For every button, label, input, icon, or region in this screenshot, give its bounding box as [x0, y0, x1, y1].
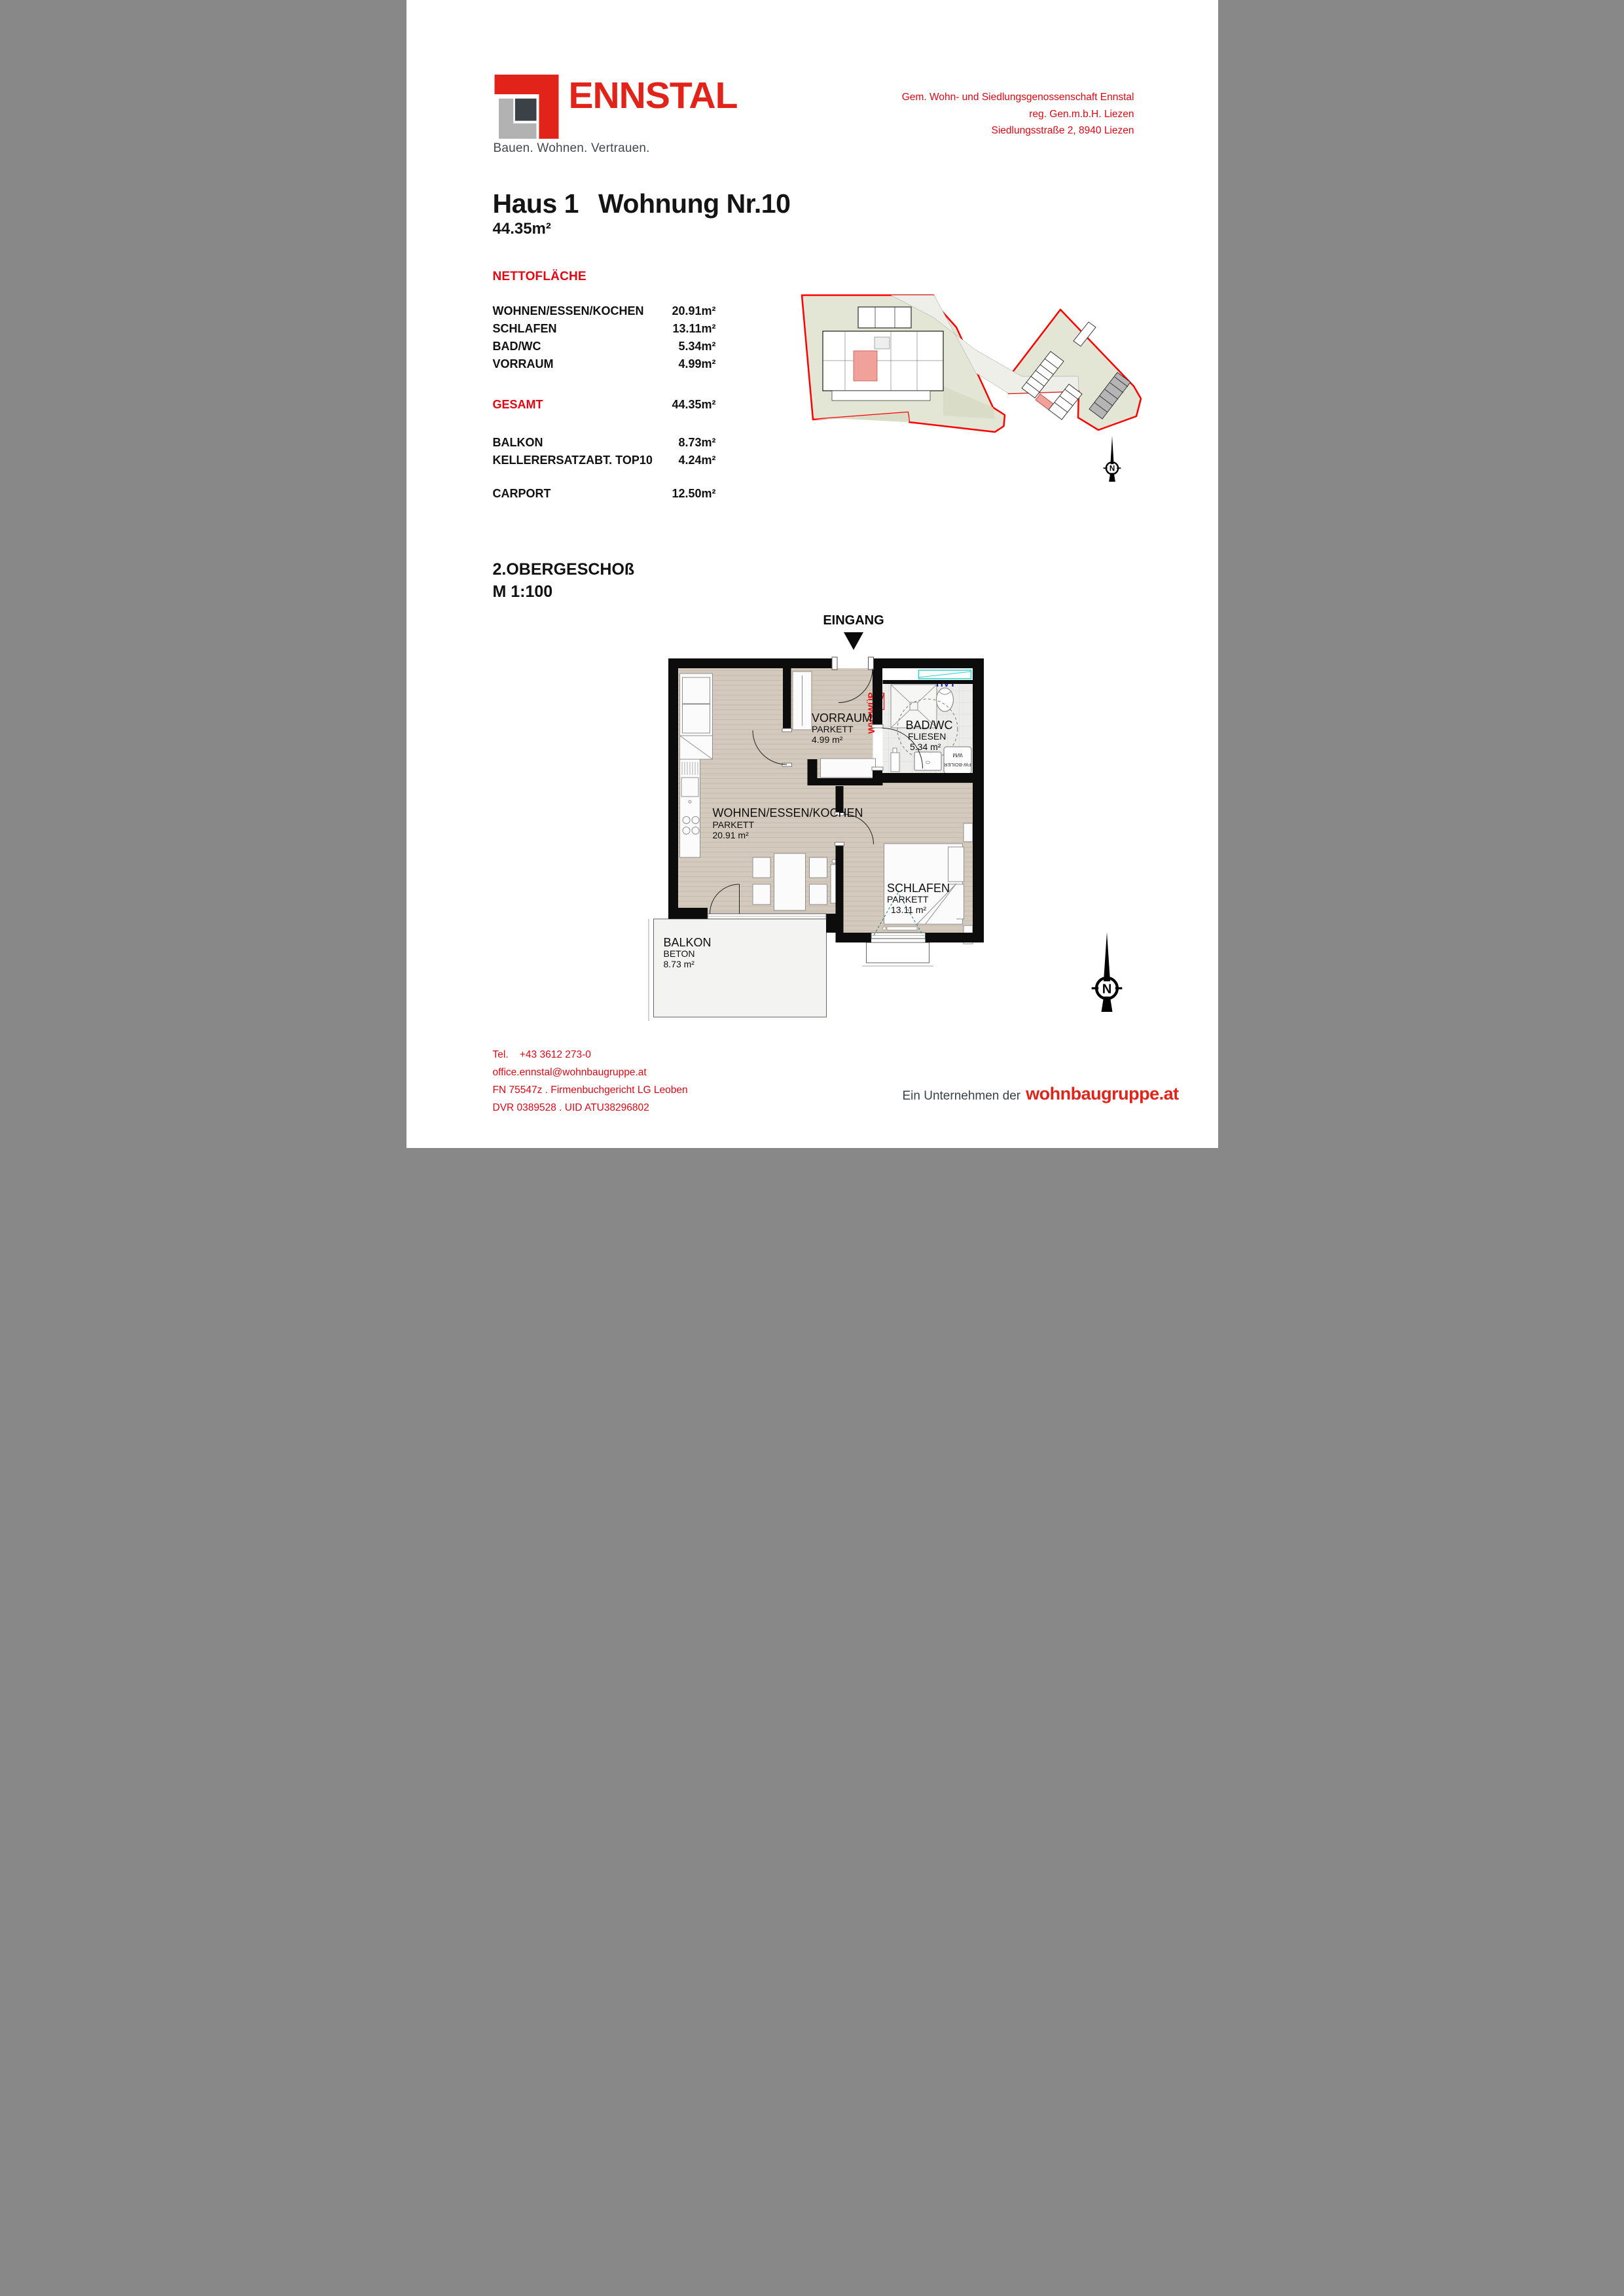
balkon-name: BALKON [663, 936, 711, 949]
netto-heading: NETTOFLÄCHE [493, 270, 586, 284]
north-letter: N [1102, 982, 1111, 996]
balkon-floor: BETON [663, 948, 695, 959]
table-row-gesamt: GESAMT44.35m² [493, 398, 716, 412]
window-sill [866, 942, 929, 963]
title-wohnung: Wohnung Nr.10 [598, 188, 790, 219]
floor-scale: M 1:100 [493, 583, 553, 601]
partner-prefix: Ein Unternehmen der [903, 1089, 1021, 1103]
carport-label: CARPORT [493, 487, 551, 501]
apartment-floorplan: EINGANG [629, 609, 989, 1021]
floor-level: 2.OBERGESCHOß [493, 560, 635, 579]
boiler-label: FW-BOILER [943, 762, 971, 768]
site-parcel-right [1005, 310, 1141, 430]
vorraum-floor: PARKETT [812, 724, 854, 734]
site-garage [858, 307, 911, 328]
wohnen-name: WOHNEN/ESSEN/KOCHEN [712, 806, 863, 819]
title-total-area: 44.35m² [493, 220, 551, 238]
footer-partner: Ein Unternehmen der wohnbaugruppe.at [903, 1084, 1179, 1104]
balcony-area [649, 919, 829, 1021]
wohnen-area: 20.91 m² [712, 830, 749, 840]
floorplan-document: ENNSTAL Bauen. Wohnen. Vertrauen. Gem. W… [406, 0, 1218, 1148]
table-row: WOHNEN/ESSEN/KOCHEN20.91m² [493, 304, 716, 318]
footer-vat: DVR 0389528 . UID ATU38296802 [493, 1099, 688, 1117]
schlafen-floor: PARKETT [887, 894, 929, 905]
table-row-carport: CARPORT12.50m² [493, 487, 716, 501]
bad-area: 5.34 m² [910, 742, 941, 752]
row-value: 4.99m² [678, 357, 715, 371]
wm-label: WM [952, 752, 962, 759]
row-label: VORRAUM [493, 357, 554, 371]
footer-email: office.ennstal@wohnbaugruppe.at [493, 1064, 688, 1081]
logo-dark-square [514, 99, 536, 121]
vorraum-name: VORRAUM [812, 711, 872, 725]
washing-machine [944, 747, 971, 774]
tel-number: +43 3612 273-0 [520, 1049, 591, 1060]
company-line1: Gem. Wohn- und Siedlungsgenossenschaft E… [729, 89, 1134, 106]
north-compass-icon: N [1099, 436, 1125, 482]
row-label: BALKON [493, 436, 543, 450]
site-highlighted-unit [854, 351, 877, 381]
page-title: Haus 1Wohnung Nr.10 [493, 188, 791, 219]
site-plan [793, 278, 1153, 435]
ennstal-logo-icon [493, 75, 560, 139]
balkon-area: 8.73 m² [663, 959, 695, 969]
company-address: Gem. Wohn- und Siedlungsgenossenschaft E… [729, 89, 1134, 139]
table-row: BALKON8.73m² [493, 436, 716, 450]
company-line2: reg. Gen.m.b.H. Liezen [729, 106, 1134, 123]
footer-registry: FN 75547z . Firmenbuchgericht LG Leoben [493, 1081, 688, 1099]
row-value: 13.11m² [672, 322, 715, 336]
footer-contact: Tel. +43 3612 273-0 office.ennstal@wohnb… [493, 1046, 688, 1117]
schlafen-name: SCHLAFEN [887, 882, 950, 895]
partner-brand: wohnbaugruppe.at [1026, 1084, 1178, 1104]
row-label: KELLERERSATZABT. TOP10 [493, 454, 653, 467]
title-haus: Haus 1 [493, 188, 579, 219]
tel-label: Tel. [493, 1049, 509, 1060]
footer-phone: Tel. +43 3612 273-0 [493, 1046, 688, 1064]
bad-floor: FLIESEN [908, 731, 946, 742]
bad-name: BAD/WC [905, 719, 952, 732]
brand-tagline: Bauen. Wohnen. Vertrauen. [494, 141, 650, 156]
site-building [823, 331, 943, 401]
row-value: 4.24m² [678, 454, 715, 467]
table-row: KELLERERSATZABT. TOP104.24m² [493, 454, 716, 467]
north-compass-icon-large: N [1089, 932, 1125, 1012]
row-value: 5.34m² [678, 340, 715, 353]
table-row: SCHLAFEN13.11m² [493, 322, 716, 336]
carport-value: 12.50m² [672, 487, 715, 501]
area-table: WOHNEN/ESSEN/KOCHEN20.91m² SCHLAFEN13.11… [493, 301, 716, 504]
company-line3: Siedlungsstraße 2, 8940 Liezen [729, 122, 1134, 139]
table-row: BAD/WC5.34m² [493, 340, 716, 353]
north-letter: N [1109, 465, 1114, 473]
table-row: VORRAUM4.99m² [493, 357, 716, 371]
row-label: WOHNEN/ESSEN/KOCHEN [493, 304, 644, 318]
row-label: SCHLAFEN [493, 322, 557, 336]
eingang-label: EINGANG [823, 613, 884, 628]
logo-wordmark: ENNSTAL [569, 77, 738, 115]
row-label: BAD/WC [493, 340, 541, 353]
vorraum-area: 4.99 m² [812, 734, 843, 745]
eingang-arrow-icon [844, 632, 863, 650]
wohnen-floor: PARKETT [712, 819, 754, 830]
gesamt-value: 44.35m² [672, 398, 715, 412]
schlafen-area: 13.11 m² [891, 905, 927, 915]
row-value: 8.73m² [678, 436, 715, 450]
row-value: 20.91m² [672, 304, 715, 318]
gesamt-label: GESAMT [493, 398, 543, 412]
